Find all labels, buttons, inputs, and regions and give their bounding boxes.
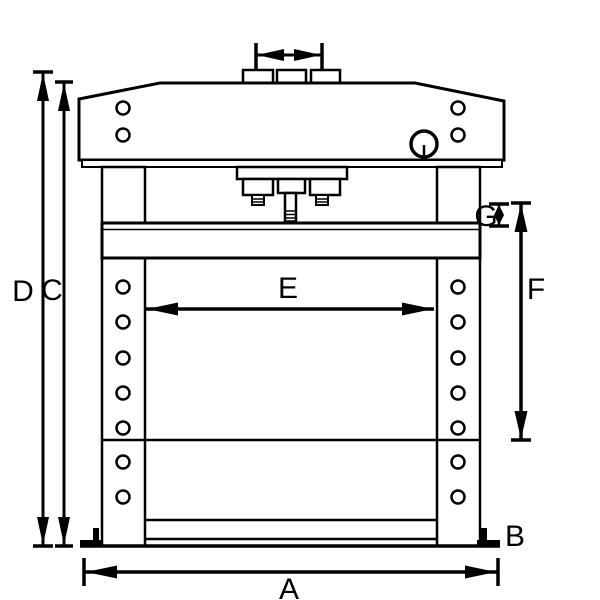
bolt-hole [452,129,465,142]
bolt-hole [117,129,130,142]
upper-beam [102,223,480,258]
dimension-g-label: G [474,200,497,233]
press-drawing-canvas: D C E F G A B [0,0,600,600]
crown-body [79,83,504,160]
ram-block-middle [278,179,305,193]
bolt-hole [452,316,465,329]
pressure-gauge-icon [411,131,437,157]
bolt-hole [452,352,465,365]
bolt-hole [117,281,130,294]
dimension-d-label: D [12,275,34,308]
press-dimension-diagram: D C E F G A B [0,0,600,600]
bolt-hole [117,387,130,400]
foot-right-lip [481,528,487,540]
bolt-hole [117,422,130,435]
bolt-hole [452,456,465,469]
bolt-hole [117,316,130,329]
bolt-hole [117,456,130,469]
threaded-stud-left [252,195,264,205]
bolt-hole [117,352,130,365]
press-crown [79,83,504,167]
ram-block-right [310,179,340,195]
dimension-c-label: C [41,274,63,307]
bolt-hole [117,491,130,504]
bolt-hole [452,491,465,504]
bolt-hole [117,102,130,115]
foot-left-plate [80,540,103,547]
bolt-hole [452,387,465,400]
cylinder-mount-plate [237,167,347,179]
foot-right-plate [477,540,500,547]
threaded-stud-right [316,195,328,205]
dimension-f-label: F [527,273,545,306]
upper-beam-face [102,223,480,258]
bolt-hole [452,422,465,435]
bolt-hole [452,102,465,115]
ram-block-left [243,179,273,195]
dimension-a-label: A [279,573,299,600]
bolt-hole [452,281,465,294]
foot-left-lip [93,528,99,540]
dimension-b-label: B [505,520,525,553]
dimension-e-label: E [278,272,298,305]
